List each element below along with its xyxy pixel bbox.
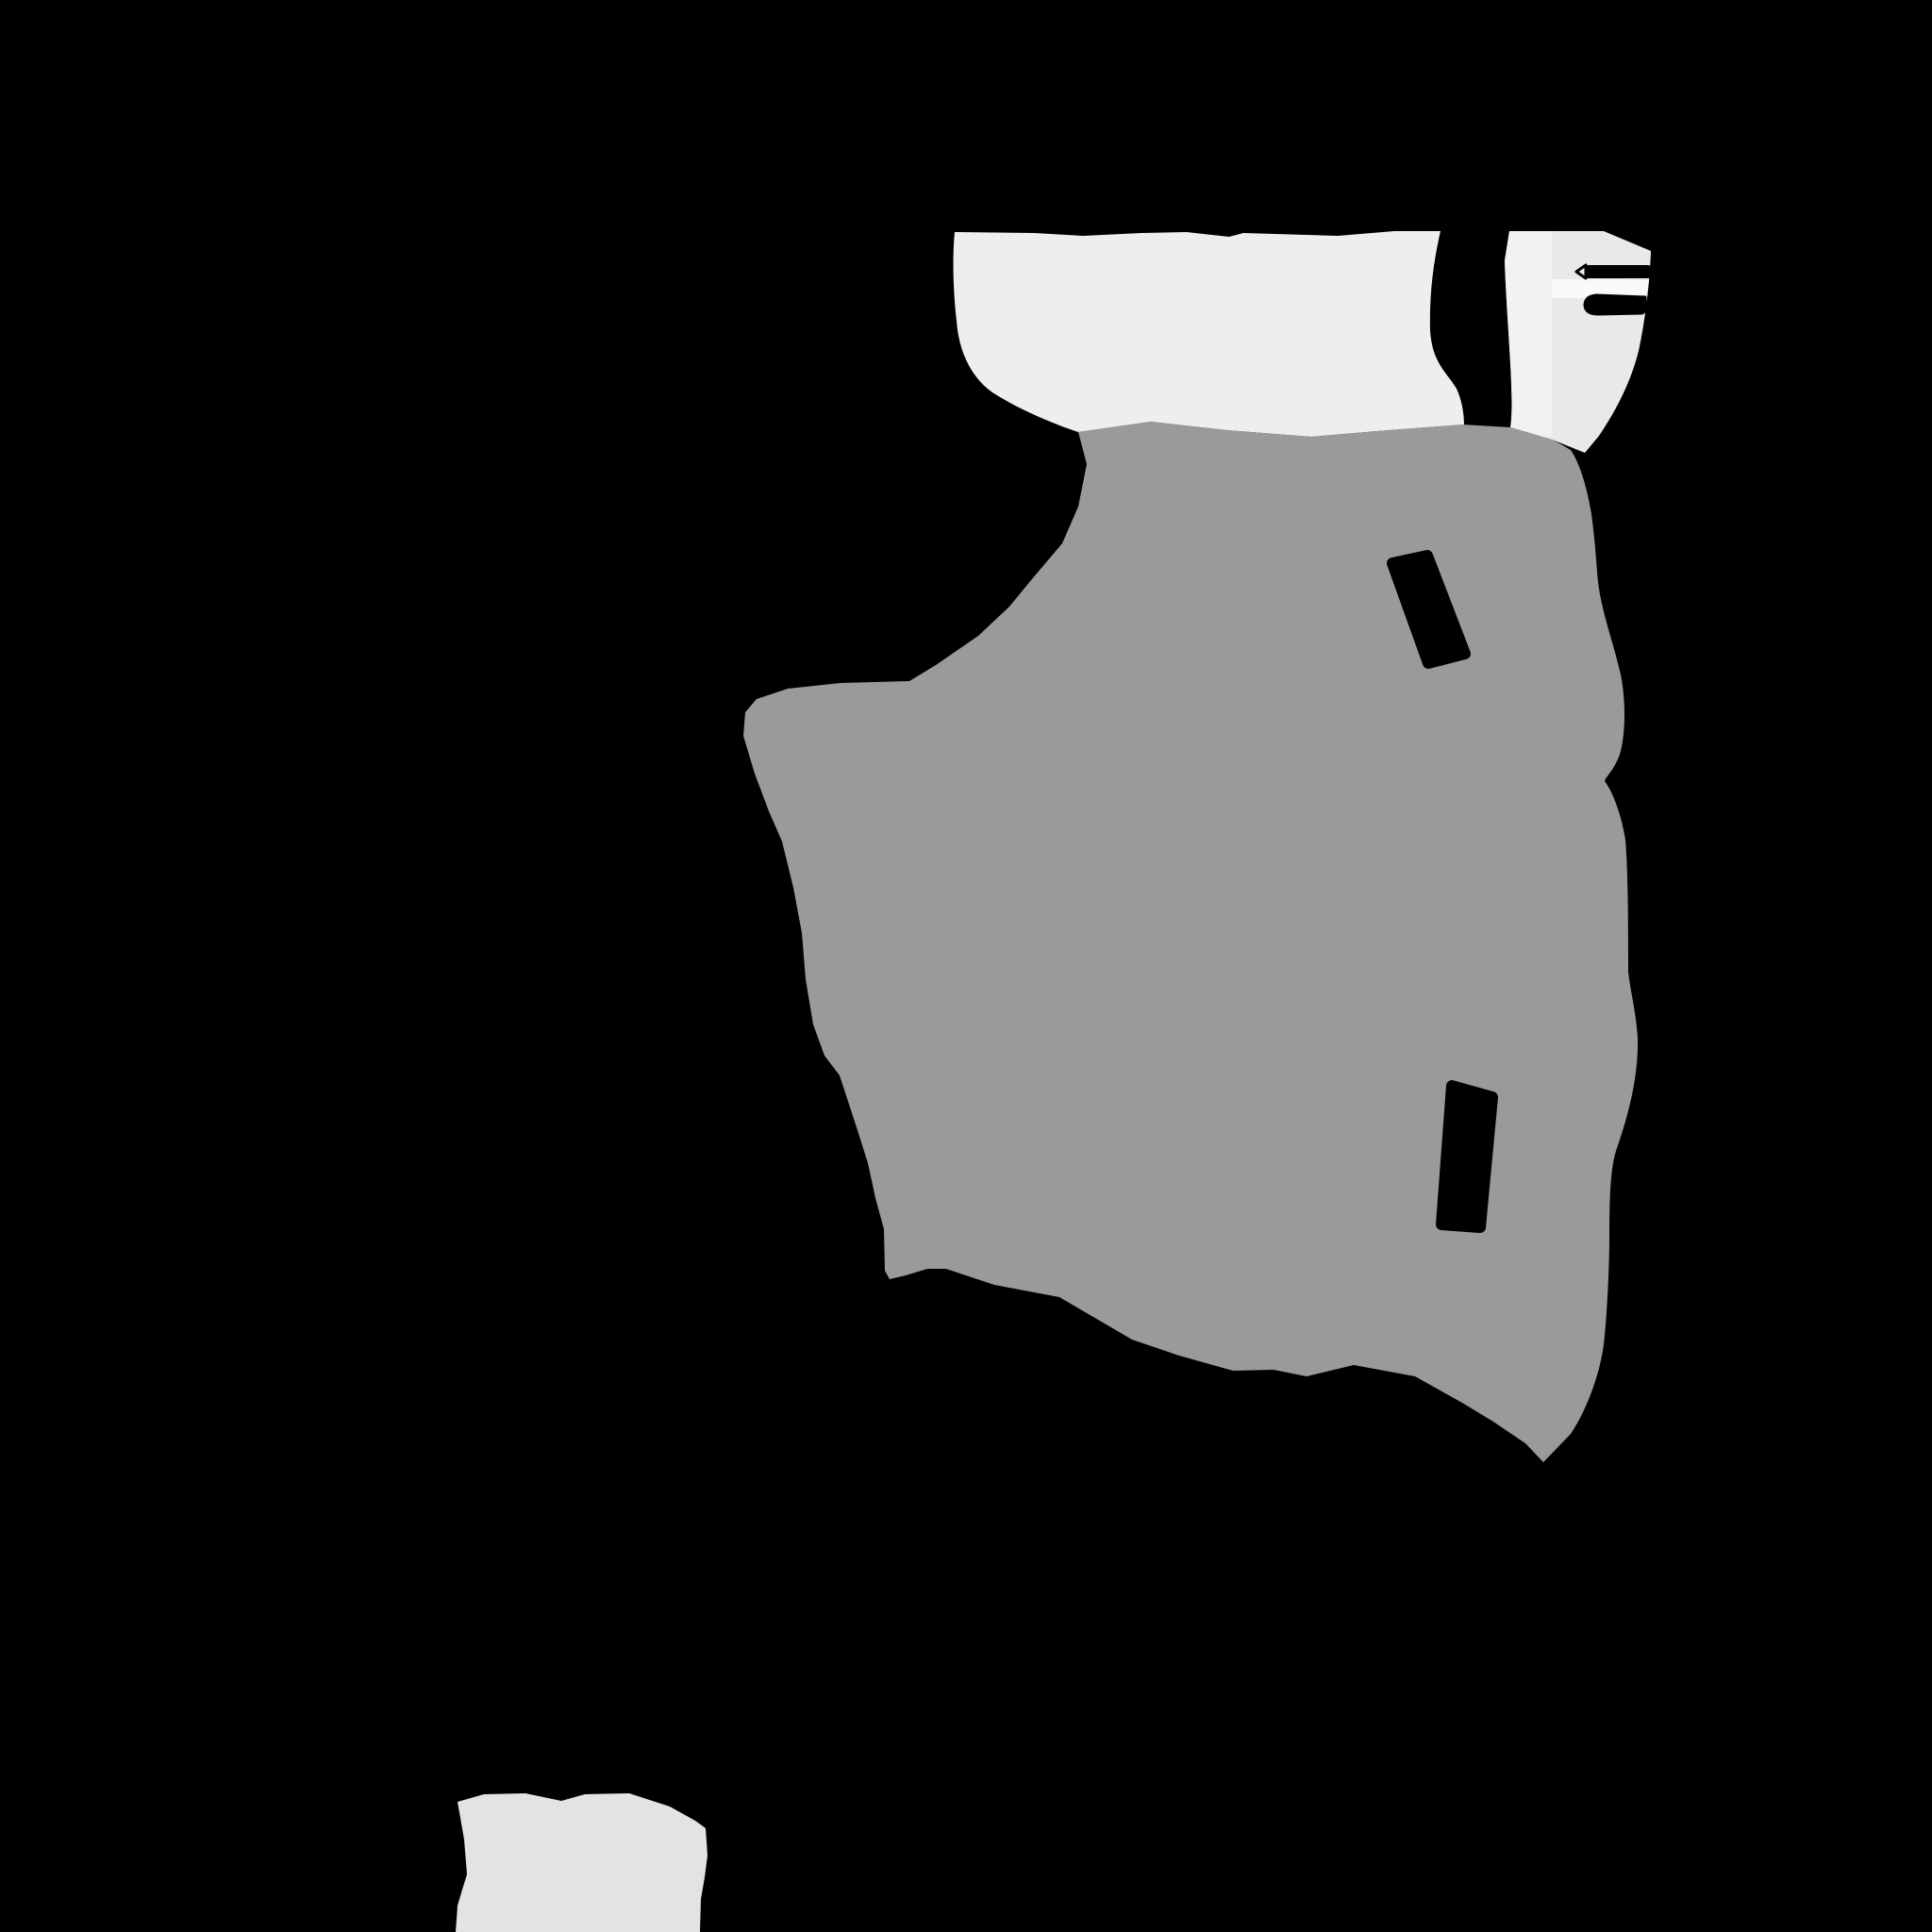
shield-piece-left-facet <box>1505 231 1552 438</box>
posterized-image-canvas <box>0 0 1932 1932</box>
scene-svg <box>0 0 1932 1932</box>
lower-slit <box>1441 1086 1492 1227</box>
gray-blob <box>743 422 1638 1462</box>
upper-prong-bar <box>1585 265 1652 278</box>
lower-prong-bar <box>1585 295 1645 314</box>
bottom-edge-blob <box>456 1793 708 1932</box>
main-white-region <box>954 231 1464 437</box>
